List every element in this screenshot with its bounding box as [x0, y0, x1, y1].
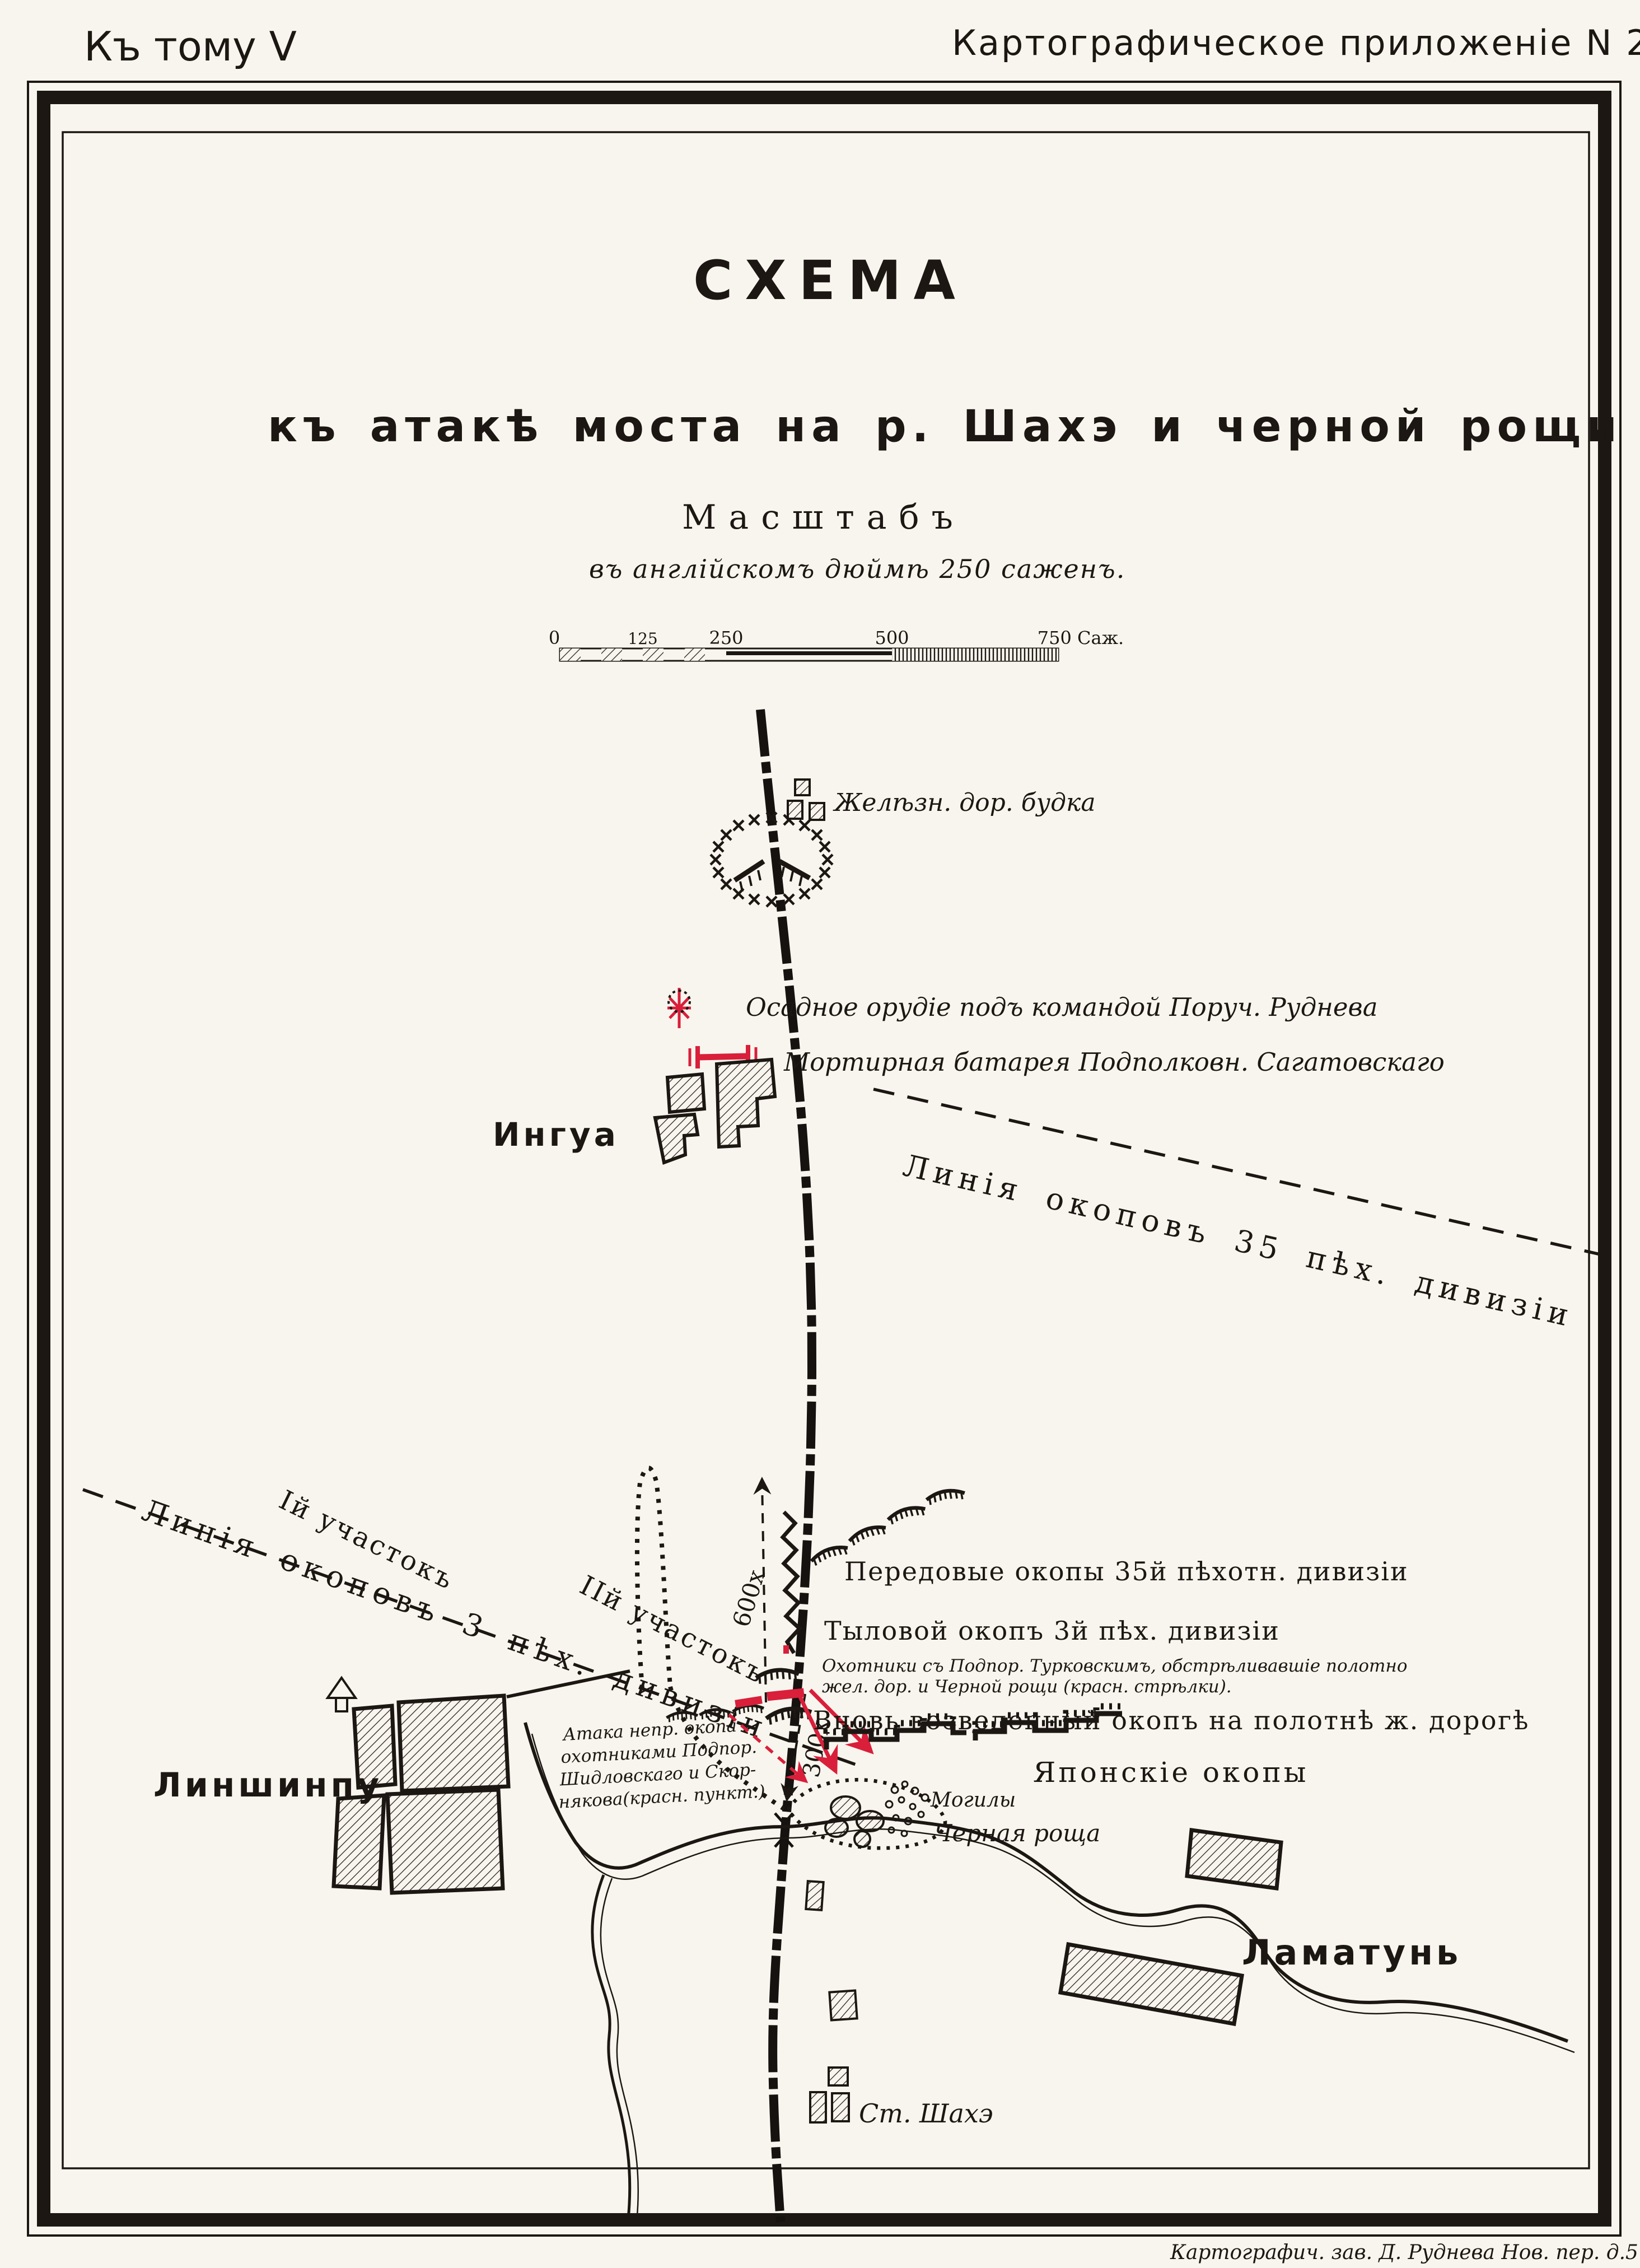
station-buildings	[810, 2068, 849, 2122]
attack-note: Атака непр. окопа охотниками Подпор. Шид…	[555, 1714, 766, 1812]
scale-bar: 0 125 250 500 750 Саж.	[549, 627, 1124, 661]
railway-hut-label: Желѣзн. дор. будка	[833, 788, 1096, 817]
imprint: Картографич. зав. Д. Руднева Нов. пер. д…	[1170, 2241, 1640, 2264]
scale-tick-125: 125	[628, 629, 657, 648]
rear-trench-label: Тыловой окопъ 3й пѣх. дивизіи	[824, 1616, 1280, 1646]
scale-tick-0: 0	[549, 627, 560, 648]
graves-label: Могилы	[930, 1789, 1016, 1812]
new-trench-label: Вновь возведенный окопъ на полотнѣ ж. до…	[813, 1705, 1530, 1735]
scale-tick-250: 250	[709, 627, 743, 648]
map-subtitle: къ атакѣ моста на р. Шахэ и черной рощи	[268, 402, 1623, 452]
village-ingua-blocks	[655, 1060, 775, 1163]
map-sheet: Къ тому V Картографическое приложеніе N …	[0, 0, 1640, 2268]
volume-label: Къ тому V	[84, 23, 297, 70]
hunters-note-line1: Охотники съ Подпор. Турковскимъ, обстрѣл…	[822, 1656, 1408, 1676]
japanese-trenches-label: Японскіе окопы	[1033, 1756, 1309, 1789]
appendix-label: Картографическое приложеніе N 26.	[952, 22, 1640, 63]
village-linshinpu-label: Линшинпу	[153, 1766, 382, 1805]
black-grove-label: Черная роща	[934, 1819, 1100, 1847]
isolated-buildings	[806, 1881, 857, 2020]
village-ingua-label: Ингуа	[493, 1116, 619, 1154]
forward-trenches-label: Передовые окопы 35й пѣхотн. дивизіи	[844, 1556, 1409, 1586]
railway-line	[760, 710, 812, 2222]
siege-gun-icon	[667, 988, 691, 1028]
railway-hut-icon	[788, 780, 824, 820]
scale-note: въ англійскомъ дюймѣ 250 саженъ.	[589, 554, 1125, 584]
station-label: Ст. Шахэ	[859, 2098, 993, 2129]
river-south-branch	[592, 1875, 630, 2219]
scale-tick-500: 500	[875, 627, 909, 648]
scale-tick-750: 750 Саж.	[1038, 627, 1124, 648]
mortar-battery-label: Мортирная батарея Подполковн. Сагатовска…	[783, 1047, 1445, 1077]
forward-trench-icons	[809, 1487, 965, 1566]
map-title: СХЕМА	[693, 249, 968, 312]
siege-gun-label: Осадное орудіе подъ командой Поруч. Рудн…	[746, 992, 1378, 1022]
village-lamatun-label: Ламатунь	[1242, 1932, 1461, 1973]
rear-zigzag-trench	[783, 1512, 800, 1653]
distance-600-label: 600х	[727, 1566, 770, 1630]
trench-line-35-label: Линія окоповъ 35 пѣх. дивизіи	[900, 1147, 1577, 1334]
pagoda-icon	[328, 1678, 356, 1711]
scale-heading: Масштабъ	[682, 498, 965, 537]
graves-icons	[886, 1781, 928, 1836]
map-canvas: Къ тому V Картографическое приложеніе N …	[0, 0, 1640, 2268]
hunters-note-line2: жел. дор. и Черной рощи (красн. стрѣлки)…	[822, 1677, 1232, 1697]
